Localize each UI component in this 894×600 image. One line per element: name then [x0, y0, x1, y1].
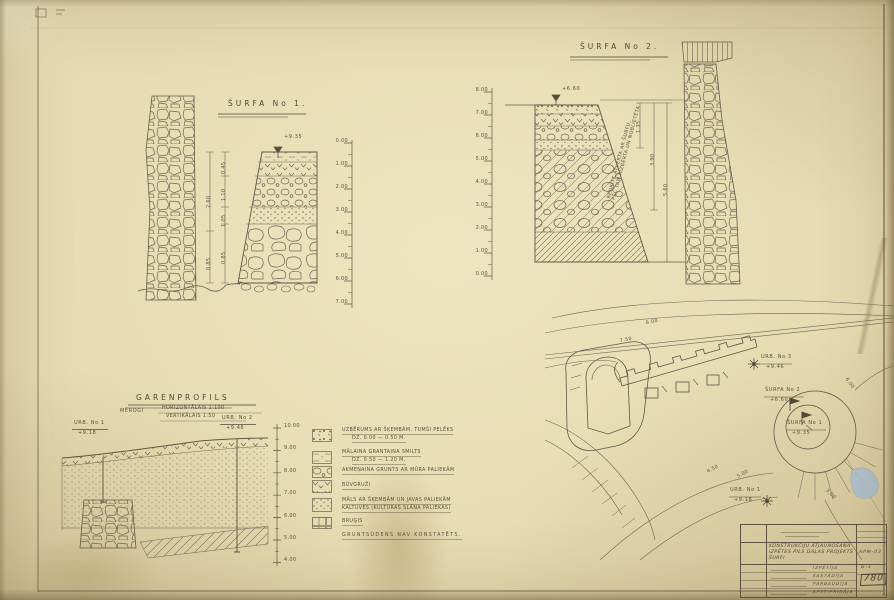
titleblock-code: APM-03	[858, 551, 882, 556]
profile-scale-vertical: VERTIKĀLAIS 1:50	[166, 414, 215, 419]
site-plan	[545, 300, 893, 560]
profile-scale-horizontal: HORIZONTĀLAIS 1:100	[162, 406, 224, 411]
legend-item-text: AKMEŅAINA GRUNTS AR MŪRA PALIEKĀM	[342, 468, 454, 475]
legend-swatch-clay	[312, 498, 332, 512]
scale-label: 6.00	[284, 514, 296, 520]
scale-label: 4.00	[462, 180, 488, 186]
surfa2-masonry-wall	[682, 42, 740, 284]
plan-borehole3-name: URB. No 3	[761, 355, 792, 361]
surfa2-flag	[790, 398, 799, 411]
legend-item-text: UZBĒRUMS AR ŠĶEMBĀM, TUMŠI PELĒKS	[342, 428, 453, 435]
titleblock-role: SASTĀDĪJA	[812, 574, 844, 579]
scale-label: 7.00	[322, 300, 348, 306]
surfa2-section	[484, 42, 740, 284]
borehole-1-star	[761, 495, 773, 507]
titleblock-role: IZPĒTĪJA	[812, 566, 838, 571]
profile-left-point-name: URB. No 1	[74, 421, 105, 427]
dim-label: 0.85	[207, 258, 213, 270]
plan-borehole1-elev: +9.18	[734, 498, 752, 504]
title-block: KONSTRUKCIJU ATJAUNOŠANA IZPĒTES PILS DA…	[740, 524, 887, 598]
scale-label: 10.00	[284, 424, 300, 430]
titleblock-formtext	[785, 536, 819, 537]
legend-item-text: BŪVGRUŽI	[342, 483, 370, 490]
legend-item-text: MĀLS AR ŠĶEMBĀM UN JAVAS PALIEKĀM	[342, 498, 451, 505]
scale-label: 8.00	[284, 469, 296, 475]
legend-item-text: KALTUVES (KULTŪRAS SLĀŅA PALIEKAS)	[342, 506, 451, 513]
profile-right-point-elev: +9.46	[226, 426, 244, 432]
plan-borehole3-elev: +9.46	[766, 365, 784, 371]
profile-title: GARENPROFILS	[136, 394, 230, 402]
plan-slope-hatch	[572, 456, 635, 528]
surfa2-elevation-marker	[552, 95, 560, 105]
scale-label: 1.00	[462, 249, 488, 255]
profile-left-point-elev: +9.18	[78, 431, 96, 437]
titleblock-role: PĀRBAUDĪJA	[812, 582, 848, 587]
legend-item-text: BRUĢIS	[342, 519, 363, 526]
plan-horseshoe-tower	[566, 342, 651, 451]
surfa1-pit-profile	[236, 152, 320, 284]
scale-label: 9.00	[284, 446, 296, 452]
plan-blue-stain	[851, 468, 879, 499]
titleblock-hline	[741, 542, 886, 543]
scale-label: 2.00	[322, 185, 348, 191]
profile-right-point-name: URB. No 2	[222, 416, 253, 422]
plan-surfa1-elev: +9.35	[792, 431, 810, 437]
plan-surfa2-elev: +6.60	[770, 398, 788, 404]
surfa2-pit-profile	[505, 105, 686, 262]
scale-label: 2.00	[462, 226, 488, 232]
dim-label: 5.60	[664, 184, 670, 196]
signature-line	[771, 578, 807, 579]
scale-label: 6.00	[322, 277, 348, 283]
dim-label: 1.35	[637, 121, 643, 133]
titleblock-project-line3: ŠURFI	[768, 556, 785, 561]
titleblock-series: G-1	[860, 566, 872, 571]
scale-label: 1.00	[322, 162, 348, 168]
surfa1-section	[138, 96, 352, 308]
titleblock-project-line1: KONSTRUKCIJU ATJAUNOŠANA	[768, 544, 850, 549]
scale-label: 0.00	[322, 139, 348, 145]
titleblock-vline	[766, 525, 767, 597]
titleblock-role: APSTIPRINĀJA	[812, 590, 853, 595]
surfa1-ground-stones	[241, 284, 315, 292]
scale-label: 5.00	[462, 157, 488, 163]
legend-item-text: DZ. 0.00 — 0.50 M.	[352, 436, 406, 443]
surfa2-elevation: +6.60	[562, 87, 580, 93]
dim-label: 0.85	[222, 252, 228, 264]
scale-label: 5.00	[322, 254, 348, 260]
surfa1-masonry-wall	[146, 96, 196, 300]
scale-label: 3.00	[462, 203, 488, 209]
titleblock-formtext	[781, 532, 829, 533]
dim-label: 0.45	[222, 162, 228, 174]
dim-label: 2.60	[207, 196, 213, 208]
titleblock-hline	[856, 531, 886, 532]
scale-label: 4.00	[322, 231, 348, 237]
legend-swatch-debris	[312, 480, 332, 493]
signature-line	[771, 570, 807, 571]
surfa2-title: ŠURFA No 2.	[580, 43, 659, 51]
legend-swatch-pavement	[312, 517, 332, 529]
dim-label: 3.90	[651, 154, 657, 166]
scale-label: 5.00	[284, 536, 296, 542]
titleblock-sheet-number: 780	[860, 573, 887, 586]
plan-borehole1-name: URB. No 1	[730, 488, 761, 494]
legend-item-text: DZ. 0.50 — 1.20 M.	[352, 458, 406, 465]
surfa1-title: ŠURFA No 1.	[228, 100, 307, 108]
scale-label: 7.00	[462, 111, 488, 117]
scale-label: 0.00	[462, 272, 488, 278]
surfa1-elevation: +9.35	[284, 135, 302, 141]
legend-swatch-stony	[312, 466, 332, 478]
legend-swatch-sand	[312, 451, 332, 464]
signature-line	[771, 586, 807, 587]
scale-label: 6.00	[462, 134, 488, 140]
drawing-sheet: ŠURFA No 1. +9.35 0.00 1.00 2.00 3.00 4.…	[0, 0, 894, 600]
titleblock-project-line2: IZPĒTES PILS DAĻAS PROJEKTS	[768, 550, 853, 555]
borehole-3-star	[748, 358, 760, 370]
plan-surfa2-name: ŠURFA No 2	[765, 388, 800, 394]
legend-item-text: MĀLAINA GRANTAINA SMILTS	[342, 450, 421, 457]
scale-label: 7.00	[284, 491, 296, 497]
plan-surfa1-name: ŠURFA No 1	[787, 421, 822, 427]
scale-label: 4.00	[284, 558, 296, 564]
scale-label: 3.00	[322, 208, 348, 214]
legend: UZBĒRUMS AR ŠĶEMBĀM, TUMŠI PELĒKS DZ. 0.…	[312, 428, 532, 543]
titleblock-vline	[856, 525, 857, 597]
surfa1-title-underline	[218, 114, 306, 117]
profile-merogi-label: MĒROGI	[120, 409, 144, 415]
scale-label: 8.00	[462, 88, 488, 94]
plan-contours	[545, 300, 893, 560]
dim-label: 1.05	[222, 215, 228, 227]
signature-line	[771, 594, 807, 595]
dim-label: 1.10	[222, 189, 228, 201]
surfa2-title-underline	[570, 57, 668, 60]
legend-groundwater-note: GRUNTSŪDENS NAV KONSTATĒTS.	[342, 533, 462, 540]
legend-swatch-fill	[312, 429, 332, 442]
profile-depth-scale	[273, 424, 281, 566]
titleblock-hline	[856, 537, 886, 538]
